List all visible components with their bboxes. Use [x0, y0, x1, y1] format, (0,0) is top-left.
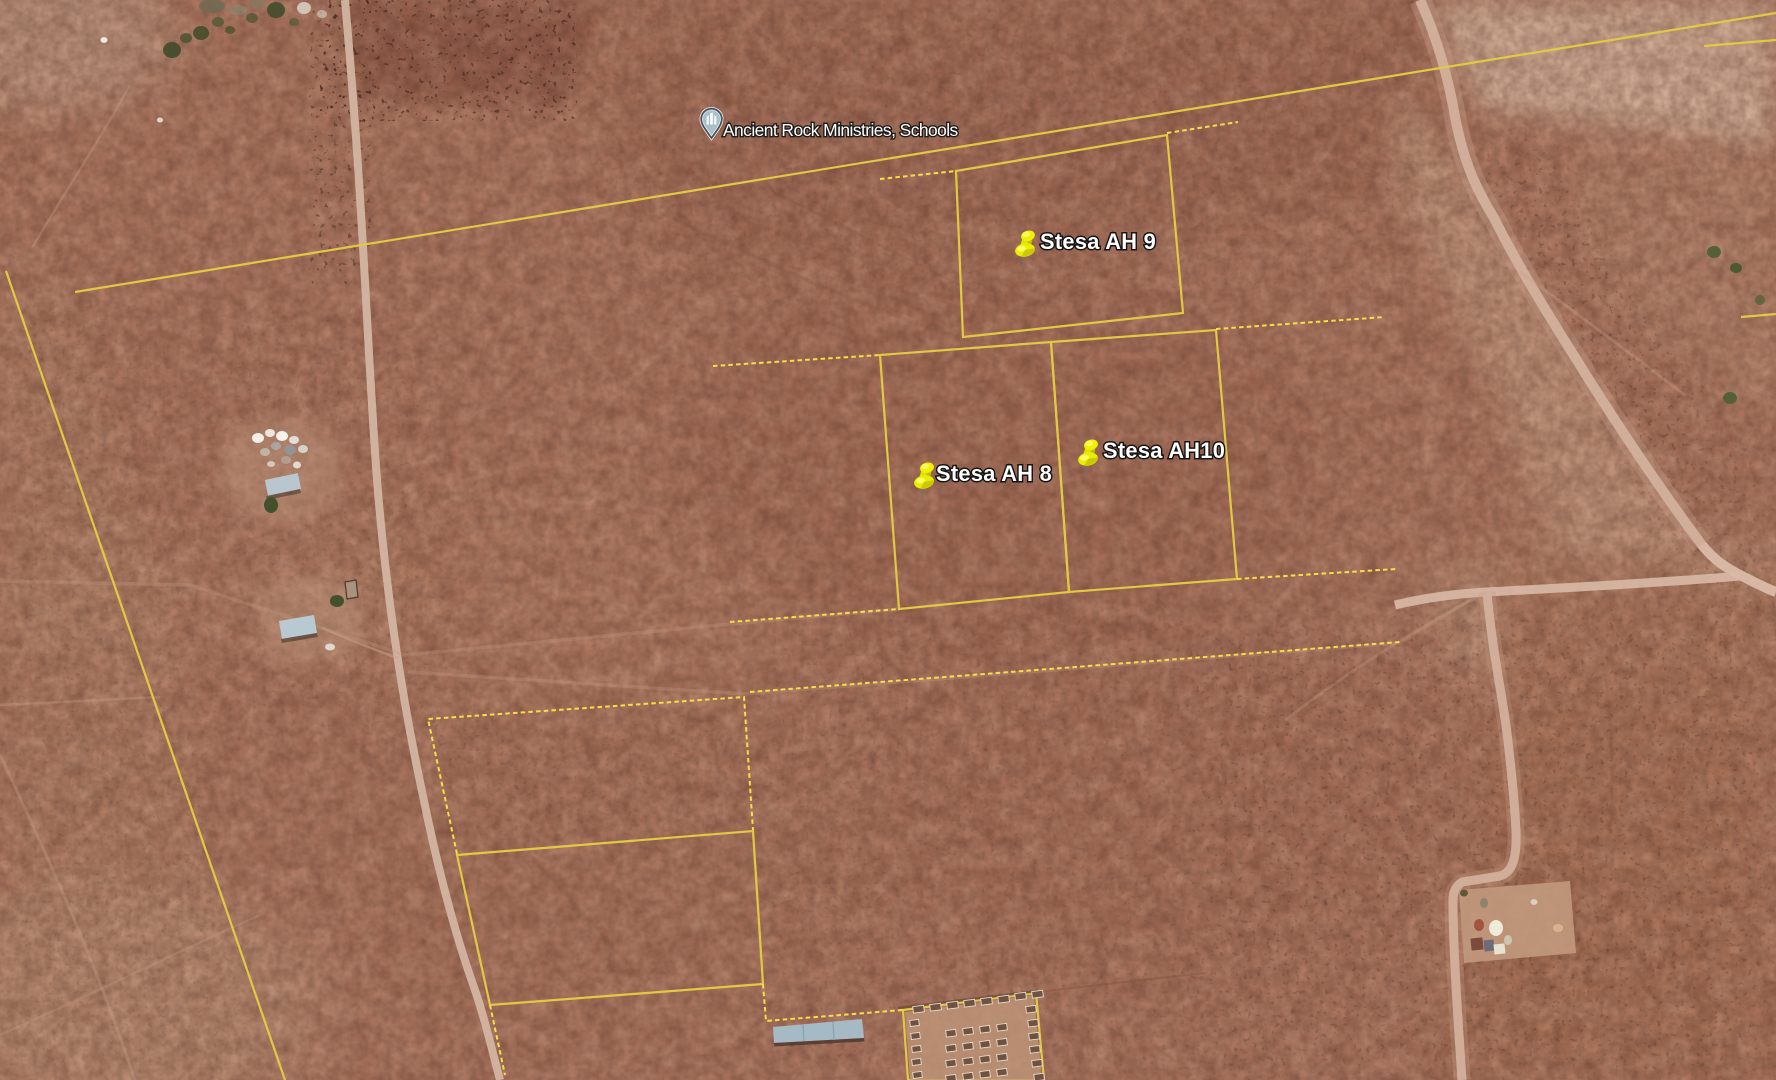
svg-text:Stesa AH 8: Stesa AH 8	[936, 461, 1052, 486]
svg-text:Stesa AH10: Stesa AH10	[1103, 438, 1225, 463]
svg-text:Stesa AH 9: Stesa AH 9	[1040, 229, 1156, 254]
svg-text:Ancient Rock Ministries, Schoo: Ancient Rock Ministries, Schools	[723, 120, 959, 140]
